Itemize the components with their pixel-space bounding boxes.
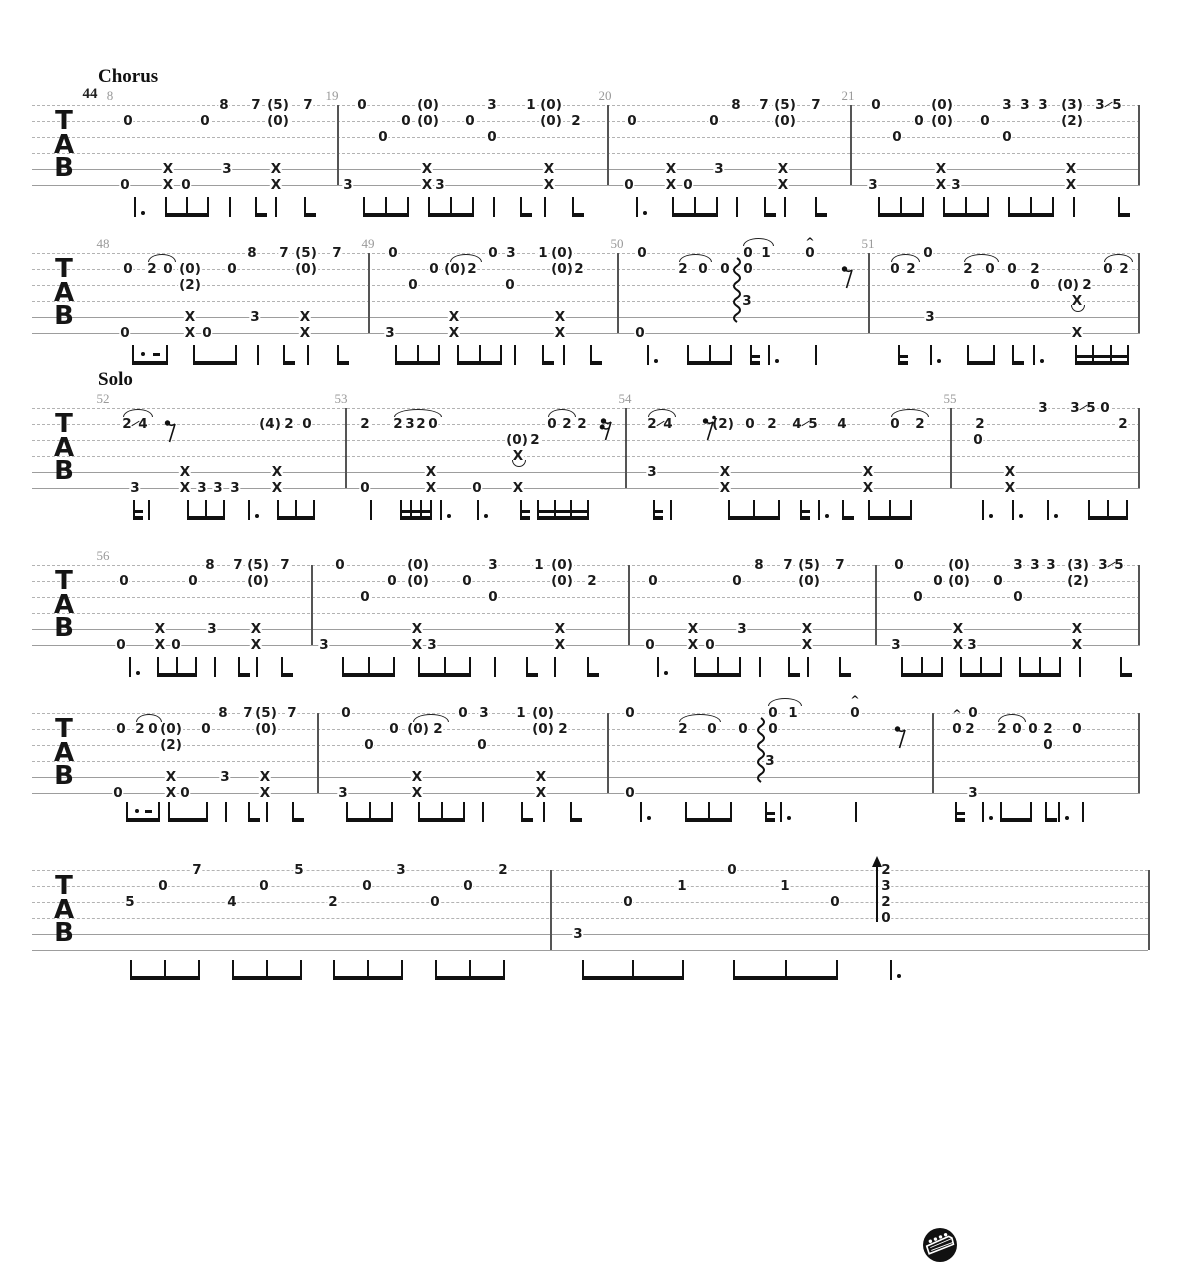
tab-note: 3 (1037, 98, 1048, 112)
tab-note: X (952, 622, 964, 636)
tab-note: X (448, 326, 460, 340)
rhythm-beam (165, 213, 209, 218)
tab-note: X (687, 638, 699, 652)
tab-note: X (543, 178, 555, 192)
rhythm-stem (1079, 657, 1081, 677)
rhythm-beam (132, 361, 168, 366)
tab-note: 2 (466, 262, 477, 276)
tab-note: (0) (406, 558, 430, 572)
tab-note: 8 (246, 246, 257, 260)
tab-note: 5 (1111, 98, 1122, 112)
tab-note: X (425, 481, 437, 495)
tab-note: 0 (119, 178, 130, 192)
tab-note: 3 (206, 622, 217, 636)
rhythm-beam (400, 516, 432, 521)
rhythm-beam (672, 213, 718, 218)
rhythm-beam (232, 976, 302, 981)
tab-note: X (1004, 481, 1016, 495)
tab-note: 0 (122, 114, 133, 128)
tab-note: 3 (1019, 98, 1030, 112)
tie-arc (648, 409, 676, 417)
marcato-accent-icon: ^ (850, 694, 859, 707)
tie-arc (1104, 254, 1133, 262)
tie-arc (679, 714, 721, 722)
staff-line (32, 934, 1148, 935)
tab-note: X (665, 162, 677, 176)
tab-sheet: Chorus Solo TAB44819202100XX00387(5)(0)X… (0, 0, 1200, 1266)
tab-note: 4 (137, 417, 148, 431)
rhythm-beam (130, 976, 200, 981)
tie-arc (394, 409, 442, 417)
tab-note: (0) (550, 574, 574, 588)
rhythm-beam (542, 361, 554, 366)
tab-note: 1 (533, 558, 544, 572)
rhythm-stem (1082, 802, 1084, 822)
tab-note: 0 (744, 417, 755, 431)
rhythm-dot (825, 514, 829, 518)
staff-line (32, 456, 1140, 457)
rhythm-beam (901, 673, 943, 678)
barline (1138, 105, 1140, 185)
tab-note: X (165, 770, 177, 784)
tab-note: 0 (187, 574, 198, 588)
rhythm-stem (482, 802, 484, 822)
tab-note: 3 (950, 178, 961, 192)
rhythm-stem (440, 500, 442, 520)
tab-note: 0 (461, 574, 472, 588)
rhythm-stem (257, 345, 259, 365)
rhythm-beam (526, 673, 538, 678)
barline (1138, 408, 1140, 488)
rhythm-beam (800, 516, 810, 521)
tab-note: 3 (337, 786, 348, 800)
tab-note: 0 (388, 722, 399, 736)
tie-arc (768, 698, 802, 706)
tab-note: X (421, 178, 433, 192)
tab-note: 0 (634, 326, 645, 340)
rhythm-stem (370, 500, 372, 520)
tab-note: X (271, 481, 283, 495)
rhythm-beam (304, 213, 316, 218)
tab-note: 3 (212, 481, 223, 495)
rhythm-beam (815, 213, 827, 218)
rhythm-beam (520, 510, 530, 513)
eighth-rest-icon (841, 263, 855, 291)
tab-note: 0 (636, 246, 647, 260)
tab-note: 2 (586, 574, 597, 588)
tab-note: 0 (626, 114, 637, 128)
rhythm-beam (960, 673, 1002, 678)
tab-note: 3 (384, 326, 395, 340)
tab-note: 0 (361, 879, 372, 893)
tab-note: 2 (1117, 417, 1128, 431)
staff-line (32, 472, 1140, 473)
rhythm-stem (647, 345, 649, 365)
tab-note: 7 (782, 558, 793, 572)
tab-note: 0 (340, 706, 351, 720)
tab-note: (0) (416, 98, 440, 112)
rhythm-beam (337, 361, 349, 366)
tab-note: 1 (525, 98, 536, 112)
tab-note: 0 (1102, 262, 1113, 276)
tab-note: 2 (570, 114, 581, 128)
rhythm-stem (563, 345, 565, 365)
tie-arc (413, 714, 449, 722)
tab-note: X (665, 178, 677, 192)
tab-note: 3 (249, 310, 260, 324)
tab-note: X (425, 465, 437, 479)
rhythm-beam (1008, 213, 1054, 218)
tab-note: X (165, 786, 177, 800)
rhythm-beam (292, 818, 304, 823)
rhythm-stem (636, 197, 638, 217)
barline (875, 565, 877, 645)
tab-note: X (777, 178, 789, 192)
measure-number: 51 (861, 236, 876, 252)
rhythm-stem (930, 345, 932, 365)
tab-note: 4 (226, 895, 237, 909)
tab-note: 0 (737, 722, 748, 736)
tab-note: 2 (557, 722, 568, 736)
rhythm-dot (654, 359, 658, 363)
arpeggio-wavy-icon (732, 258, 742, 316)
rhythm-beam (750, 355, 760, 358)
tab-note: 3 (1097, 558, 1108, 572)
tab-note: 7 (232, 558, 243, 572)
tab-note: 0 (487, 246, 498, 260)
tab-note: X (543, 162, 555, 176)
marcato-accent-icon: ^ (952, 708, 961, 721)
tab-note: X (179, 465, 191, 479)
tab-note: 3 (478, 706, 489, 720)
rhythm-stem (815, 345, 817, 365)
staff-line (32, 169, 1140, 170)
tab-note: 0 (731, 574, 742, 588)
tie-arc (136, 714, 162, 722)
tab-note: 2 (327, 895, 338, 909)
tab-note: 3 (426, 638, 437, 652)
barline (311, 565, 313, 645)
tab-note: X (411, 786, 423, 800)
rhythm-beam (277, 516, 315, 521)
tab-note: (0) (505, 433, 529, 447)
rhythm-dot (136, 671, 140, 675)
rhythm-beam (281, 673, 293, 678)
tab-note: X (862, 481, 874, 495)
barline (1138, 713, 1140, 793)
rhythm-beam (955, 812, 965, 815)
tie-arc (148, 254, 176, 262)
rhythm-beam (728, 516, 780, 521)
staff-line (32, 902, 1148, 903)
rhythm-dot (255, 514, 259, 518)
tab-note: 0 (179, 786, 190, 800)
tab-note: 0 (889, 417, 900, 431)
rhythm-dot (141, 352, 145, 356)
tab-note: (2) (1060, 114, 1084, 128)
rhythm-beam (878, 213, 924, 218)
rhythm-dot (664, 671, 668, 675)
tab-note: 8 (218, 98, 229, 112)
tab-note: 0 (546, 417, 557, 431)
tab-note: 7 (242, 706, 253, 720)
tab-note: 5 (1085, 401, 1096, 415)
tab-note: (0) (550, 246, 574, 260)
tab-note: 3 (736, 622, 747, 636)
tab-note: 0 (742, 262, 753, 276)
rhythm-beam (868, 516, 912, 521)
tab-clef-letter: B (54, 920, 74, 946)
tab-note: 0 (115, 722, 126, 736)
measure-number: 21 (841, 88, 856, 104)
tab-note: 0 (1071, 722, 1082, 736)
tab-note: (5) (294, 246, 318, 260)
tab-note: 3 (1045, 558, 1056, 572)
tab-note: X (1071, 622, 1083, 636)
rhythm-beam (582, 976, 684, 981)
barline (368, 253, 370, 333)
tab-note: 7 (810, 98, 821, 112)
tab-note: 0 (476, 738, 487, 752)
tab-note: (0) (797, 574, 821, 588)
tab-note: 7 (834, 558, 845, 572)
tab-note: 0 (1001, 130, 1012, 144)
tab-note: 0 (624, 786, 635, 800)
tab-note: 3 (1069, 401, 1080, 415)
tab-note: 1 (537, 246, 548, 260)
rhythm-stem (1058, 802, 1060, 822)
tab-note: X (935, 162, 947, 176)
tab-note: 0 (301, 417, 312, 431)
tab-note: 1 (779, 879, 790, 893)
tab-note: 0 (742, 246, 753, 260)
tab-note: (0) (294, 262, 318, 276)
tab-note: (0) (406, 722, 430, 736)
rhythm-stem (982, 802, 984, 822)
tab-note: X (801, 638, 813, 652)
tie-arc (891, 409, 929, 417)
tab-note: X (184, 310, 196, 324)
tab-note: 2 (432, 722, 443, 736)
measure-number: 44 (82, 86, 99, 103)
tab-note: (0) (773, 114, 797, 128)
tab-note: (0) (531, 706, 555, 720)
rhythm-beam (750, 361, 760, 366)
tab-note: X (862, 465, 874, 479)
tab-note: 2 (766, 417, 777, 431)
slur-under-arc (512, 460, 526, 467)
tab-note: 0 (624, 706, 635, 720)
tie-arc (964, 254, 999, 262)
tab-note: 3 (404, 417, 415, 431)
tab-note: (0) (550, 558, 574, 572)
rhythm-beam (898, 355, 908, 358)
section-label-chorus: Chorus (98, 66, 158, 88)
tab-note: 7 (191, 863, 202, 877)
staff-line (32, 408, 1140, 409)
staff-line (32, 333, 1140, 334)
tab-note: 0 (697, 262, 708, 276)
tab-note: X (411, 638, 423, 652)
rhythm-beam (418, 673, 471, 678)
staff-line (32, 613, 1140, 614)
barline (950, 408, 952, 488)
tab-note: 7 (279, 558, 290, 572)
tab-note: 2 (392, 417, 403, 431)
rhythm-stem (784, 197, 786, 217)
tab-note: 2 (415, 417, 426, 431)
tab-note: (0) (539, 98, 563, 112)
rhythm-beam (590, 361, 602, 366)
rhythm-beam (967, 361, 995, 366)
rhythm-dash (153, 353, 160, 356)
tab-note: X (162, 162, 174, 176)
arpeggio-wavy-icon (756, 718, 766, 776)
tab-note: 2 (121, 417, 132, 431)
tab-note: 0 (1099, 401, 1110, 415)
rhythm-beam (1000, 818, 1032, 823)
eighth-rest-icon (894, 723, 908, 751)
tab-note: (0) (947, 574, 971, 588)
staff-line (32, 777, 1140, 778)
tab-note: (0) (266, 114, 290, 128)
tab-note: (3) (1066, 558, 1090, 572)
staff-line (32, 745, 1140, 746)
rhythm-beam (346, 818, 393, 823)
tab-note: 3 (219, 770, 230, 784)
tab-note: 0 (1042, 738, 1053, 752)
tab-note: 2 (905, 262, 916, 276)
tab-note: (0) (947, 558, 971, 572)
rhythm-beam (193, 361, 237, 366)
tab-note: (0) (178, 262, 202, 276)
measure-number: 48 (96, 236, 111, 252)
tab-note: 1 (676, 879, 687, 893)
rhythm-beam (238, 673, 250, 678)
rhythm-beam (943, 213, 989, 218)
rhythm-stem (307, 345, 309, 365)
staff-line (32, 105, 1140, 106)
tab-note: 2 (529, 433, 540, 447)
tab-note: 0 (258, 879, 269, 893)
tab-note: 0 (427, 417, 438, 431)
tab-note: X (179, 481, 191, 495)
rhythm-stem (1073, 197, 1075, 217)
tab-note: X (154, 622, 166, 636)
rhythm-beam (685, 818, 732, 823)
tab-note: 3 (890, 638, 901, 652)
rhythm-stem (1033, 345, 1035, 365)
rhythm-stem (214, 657, 216, 677)
tab-note: X (259, 786, 271, 800)
rhythm-beam (537, 510, 589, 513)
tab-note: X (271, 465, 283, 479)
tab-note: X (154, 638, 166, 652)
tab-note: 0 (992, 574, 1003, 588)
tab-note: 2 (576, 417, 587, 431)
tab-note: 0 (486, 130, 497, 144)
rhythm-beam (342, 673, 395, 678)
tab-note: 0 (719, 262, 730, 276)
rhythm-beam (255, 213, 267, 218)
barline (317, 713, 319, 793)
tab-note: 8 (217, 706, 228, 720)
tie-arc (548, 409, 576, 417)
tab-clef-letter: B (54, 763, 74, 789)
tab-note: X (935, 178, 947, 192)
measure-number: 19 (325, 88, 340, 104)
rhythm-stem (543, 802, 545, 822)
rhythm-stem (670, 500, 672, 520)
tab-note: 2 (146, 262, 157, 276)
barline (1138, 565, 1140, 645)
staff-line (32, 185, 1140, 186)
tab-note: 5 (293, 863, 304, 877)
tab-note: 4 (662, 417, 673, 431)
tab-note: X (250, 638, 262, 652)
barline (617, 253, 619, 333)
tab-note: 0 (880, 911, 891, 925)
staff-line (32, 137, 1140, 138)
tab-note: 0 (726, 863, 737, 877)
tab-note: 3 (741, 294, 752, 308)
tab-note: 0 (157, 879, 168, 893)
tab-note: 0 (922, 246, 933, 260)
tab-note: 0 (180, 178, 191, 192)
barline (1148, 870, 1150, 950)
rhythm-beam (521, 818, 533, 823)
rhythm-beam (572, 213, 584, 218)
tie-arc (998, 714, 1026, 722)
barline (607, 105, 609, 185)
tab-note: X (184, 326, 196, 340)
tab-note: 3 (1012, 558, 1023, 572)
tab-note: 0 (893, 558, 904, 572)
tab-note: X (270, 178, 282, 192)
tab-note: 2 (134, 722, 145, 736)
rhythm-dot (647, 816, 651, 820)
tab-clef-letter: B (54, 303, 74, 329)
tab-note: 2 (561, 417, 572, 431)
tab-note: 2 (880, 863, 891, 877)
tab-note: 0 (201, 326, 212, 340)
tab-note: 3 (129, 481, 140, 495)
rhythm-beam (898, 361, 908, 366)
tab-note: 0 (334, 558, 345, 572)
tab-note: 0 (428, 262, 439, 276)
tie-arc (450, 254, 482, 262)
tab-note: 7 (286, 706, 297, 720)
tab-note: X (512, 481, 524, 495)
tab-note: X (719, 481, 731, 495)
staff-line (32, 153, 1140, 154)
tab-note: 0 (1012, 590, 1023, 604)
barline (628, 565, 630, 645)
rhythm-stem (807, 657, 809, 677)
tab-note: X (421, 162, 433, 176)
tab-note: X (1065, 178, 1077, 192)
tab-note: 3 (1001, 98, 1012, 112)
measure-number: 53 (334, 391, 349, 407)
tab-note: 0 (226, 262, 237, 276)
rhythm-beam (520, 213, 532, 218)
rhythm-beam (168, 818, 208, 823)
tab-note: 0 (647, 574, 658, 588)
tab-note: 0 (979, 114, 990, 128)
tab-note: X (554, 622, 566, 636)
tie-arc (891, 254, 920, 262)
tab-note: (0) (930, 98, 954, 112)
